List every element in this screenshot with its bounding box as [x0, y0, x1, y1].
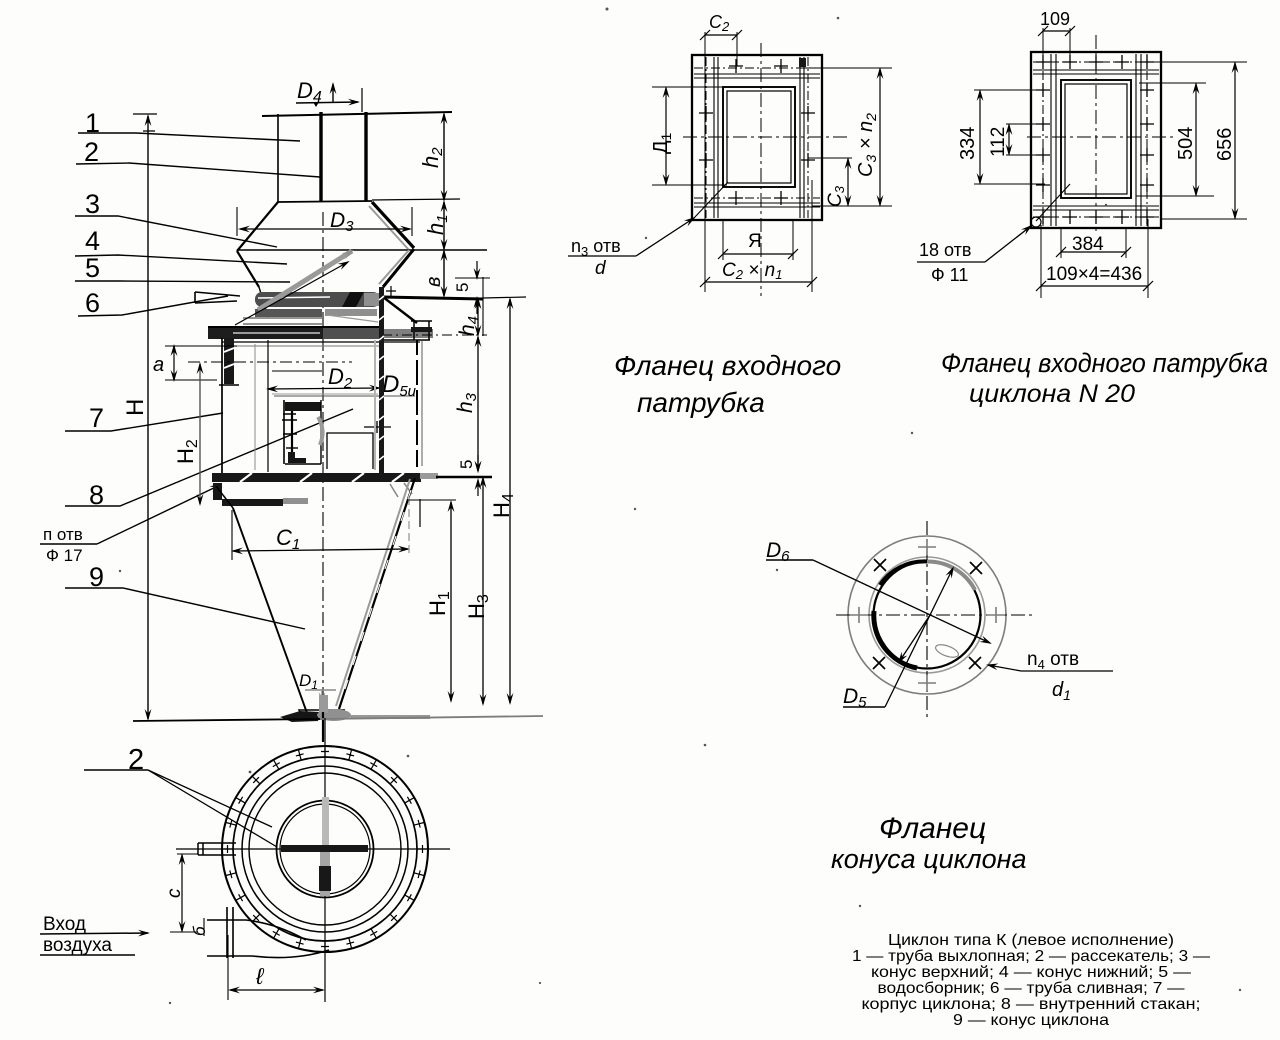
svg-text:Фланец: Фланец [879, 812, 986, 845]
svg-text:2: 2 [128, 744, 144, 776]
svg-text:Н3: Н3 [464, 594, 492, 619]
svg-text:d: d [595, 258, 607, 279]
svg-text:C1: C1 [276, 525, 300, 553]
svg-text:d1: d1 [1052, 679, 1071, 703]
svg-text:воздуха: воздуха [43, 935, 112, 956]
svg-text:Д1: Д1 [650, 132, 674, 154]
svg-text:7: 7 [89, 403, 104, 433]
svg-text:504: 504 [1175, 127, 1197, 160]
svg-text:ℓ: ℓ [255, 963, 265, 989]
svg-text:корпус циклона; 8 — внутренний: корпус циклона; 8 — внутренний стакан; [862, 996, 1201, 1013]
svg-text:C3 × n2: C3 × n2 [855, 113, 879, 177]
svg-text:384: 384 [1072, 234, 1104, 255]
svg-text:Ф 11: Ф 11 [931, 265, 968, 285]
svg-text:Н4: Н4 [489, 493, 517, 518]
svg-text:h4: h4 [456, 316, 482, 336]
svg-text:Н: Н [122, 399, 149, 416]
svg-text:c: c [164, 888, 185, 898]
svg-text:5: 5 [457, 460, 476, 469]
svg-text:D5и: D5и [382, 371, 417, 400]
svg-text:C3: C3 [825, 185, 847, 207]
svg-text:C2: C2 [709, 12, 730, 34]
svg-text:Фланец входного патрубка: Фланец входного патрубка [941, 348, 1268, 378]
svg-text:4: 4 [85, 226, 100, 256]
svg-text:109: 109 [1040, 9, 1070, 29]
svg-text:Я: Я [748, 231, 762, 252]
svg-text:D3: D3 [330, 209, 354, 235]
svg-text:C2 × n1: C2 × n1 [722, 260, 782, 282]
svg-text:Циклон типа К (левое исполнени: Циклон типа К (левое исполнение) [888, 932, 1174, 949]
svg-text:h3: h3 [454, 392, 480, 413]
svg-text:n4 отв: n4 отв [1027, 649, 1079, 672]
svg-text:D6: D6 [766, 539, 790, 565]
svg-text:в: в [423, 277, 445, 287]
svg-text:18 отв: 18 отв [919, 240, 971, 260]
svg-text:5: 5 [85, 253, 100, 283]
svg-text:патрубка: патрубка [637, 387, 765, 418]
svg-text:112: 112 [988, 127, 1009, 157]
svg-text:h1: h1 [423, 214, 451, 235]
svg-text:Ф 17: Ф 17 [46, 546, 83, 565]
svg-text:D1: D1 [299, 671, 318, 692]
svg-text:5: 5 [453, 283, 472, 292]
svg-text:конуса циклона: конуса циклона [831, 844, 1026, 874]
svg-text:109×4=436: 109×4=436 [1046, 264, 1142, 285]
svg-text:6: 6 [85, 288, 100, 318]
svg-text:2: 2 [84, 137, 99, 167]
svg-text:конус верхний; 4 — конус нижни: конус верхний; 4 — конус нижний; 5 — [871, 964, 1191, 981]
svg-text:1 — труба выхлопная; 2 — рассе: 1 — труба выхлопная; 2 — рассекатель; 3 … [852, 948, 1210, 965]
svg-text:п отв: п отв [43, 525, 83, 544]
svg-text:334: 334 [957, 127, 979, 160]
svg-text:циклона N 20: циклона N 20 [969, 380, 1135, 408]
svg-text:Н2: Н2 [173, 439, 201, 464]
svg-text:Н1: Н1 [425, 591, 453, 616]
svg-text:Вход: Вход [43, 914, 86, 935]
svg-text:656: 656 [1214, 128, 1236, 161]
svg-text:9 — конус циклона: 9 — конус циклона [953, 1012, 1109, 1029]
svg-text:D4: D4 [297, 78, 322, 106]
svg-text:3: 3 [85, 189, 100, 219]
svg-text:Фланец входного: Фланец входного [614, 350, 841, 381]
svg-text:h2: h2 [418, 147, 446, 168]
svg-text:б: б [190, 925, 209, 936]
svg-text:водосборник; 6 — труба сливная: водосборник; 6 — труба сливная; 7 — [878, 980, 1185, 997]
svg-text:a: a [153, 354, 164, 376]
